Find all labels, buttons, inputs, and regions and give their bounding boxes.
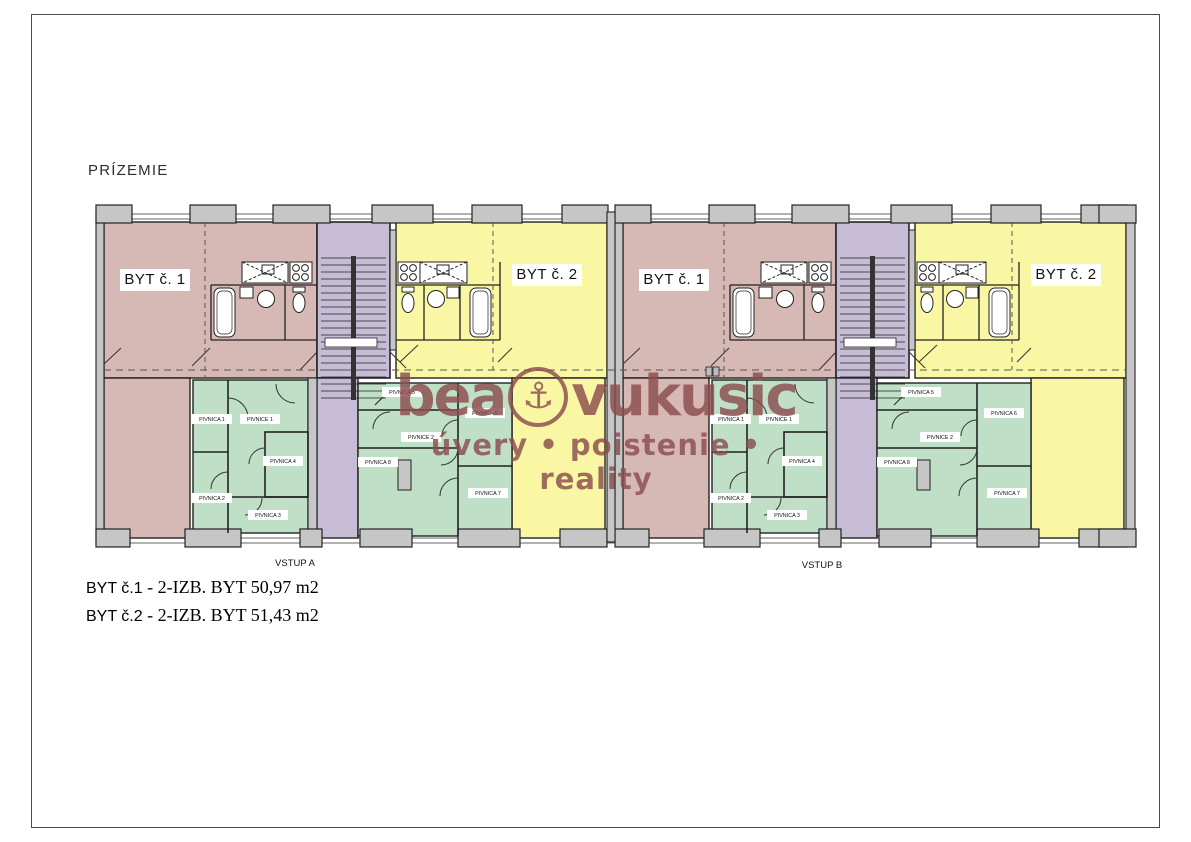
unit-a-entrance-corridor	[317, 378, 358, 538]
unit-b-label-pivnica6: PIVNICA 6	[991, 411, 1017, 417]
unit-a-byt1-label: BYT č. 1	[120, 269, 190, 291]
unit-b-byt2-label: BYT č. 2	[1031, 264, 1101, 286]
legend-byt1-desc: 2-IZB. BYT 50,97 m2	[158, 577, 319, 597]
unit-a-label-pivnica8: PIVNICA 8	[365, 460, 391, 466]
unit-a-shaft	[398, 460, 411, 490]
unit-a-label-pivnica5: PIVNICA 5	[389, 390, 415, 396]
unit-b-label-pivnice2: PIVNICE 2	[927, 435, 953, 441]
unit-b-stair-east-wall	[909, 230, 915, 350]
unit-a-byt1-label-text: BYT č. 1	[124, 271, 185, 288]
bottom-right-corner-pillar	[1099, 529, 1136, 547]
entrance-b-label: VSTUP B	[802, 560, 842, 571]
toilet	[293, 294, 305, 313]
entrance-a-label: VSTUP A	[275, 558, 316, 569]
legend-byt2-label: BYT č.2	[86, 608, 143, 625]
washbasin	[966, 287, 978, 298]
unit-b-label-pivnica8: PIVNICA 8	[884, 460, 910, 466]
right-end-wall	[1126, 212, 1135, 542]
unit-b-label-pivnica5: PIVNICA 5	[908, 390, 934, 396]
legend-byt2-desc: 2-IZB. BYT 51,43 m2	[158, 605, 319, 625]
washer	[947, 291, 964, 308]
unit-a-byt2-kitchen	[398, 262, 467, 283]
unit-a-label-pivnica2: PIVNICA 2	[199, 496, 225, 502]
unit-b-shaft	[917, 460, 930, 490]
top-right-corner-pillar	[1099, 205, 1136, 223]
unit-b-label-pivnice1: PIVNICE 1	[766, 417, 792, 423]
unit-a-byt1-lower-room	[104, 378, 190, 538]
unit-b-byt1-kitchen	[761, 262, 831, 283]
washer	[428, 291, 445, 308]
washer	[777, 291, 794, 308]
unit-a-label-pivnica1: PIVNICA 1	[199, 417, 225, 423]
unit-b-stair-west-wall	[827, 378, 836, 536]
legend-line-byt1: BYT č.1 - 2-IZB. BYT 50,97 m2	[86, 577, 319, 605]
toilet	[402, 294, 414, 313]
unit-a-left-wall	[96, 212, 104, 542]
unit-a-byt1-kitchen	[242, 262, 312, 283]
unit-b-label-pivnica4: PIVNICA 4	[789, 459, 815, 465]
unit-a-label-pivnice2: PIVNICE 2	[408, 435, 434, 441]
washbasin	[447, 287, 459, 298]
unit-b-label-pivnica7: PIVNICA 7	[994, 491, 1020, 497]
stair-rail	[870, 256, 875, 400]
legend-line-byt2: BYT č.2 - 2-IZB. BYT 51,43 m2	[86, 605, 319, 633]
unit-a-byt2-label: BYT č. 2	[512, 264, 582, 286]
unit-a-label-pivnica7: PIVNICA 7	[475, 491, 501, 497]
legend: BYT č.1 - 2-IZB. BYT 50,97 m2 BYT č.2 - …	[86, 577, 319, 633]
legend-byt1-label: BYT č.1	[86, 580, 143, 597]
unit-b-byt1-label: BYT č. 1	[639, 269, 709, 291]
toilet	[921, 294, 933, 313]
unit-a: BYT č. 1 BYT č. 2 PIVNICA 1 PIVNICE 1 PI…	[96, 205, 608, 547]
unit-b-entrance-corridor	[836, 378, 877, 538]
unit-b-label-pivnica2: PIVNICA 2	[718, 496, 744, 502]
unit-b-label-pivnica3: PIVNICA 3	[774, 513, 800, 519]
middle-party-wall	[607, 212, 615, 542]
unit-a-label-pivnica4: PIVNICA 4	[270, 459, 296, 465]
unit-b-byt2-kitchen	[917, 262, 986, 283]
washbasin	[759, 287, 772, 298]
unit-b-left-wall	[615, 212, 623, 542]
unit-a-label-pivnica6: PIVNICA 6	[472, 411, 498, 417]
unit-a-stair-east-wall	[390, 230, 396, 350]
unit-b-byt1-label-text: BYT č. 1	[643, 271, 704, 288]
unit-b-label-pivnica1: PIVNICA 1	[718, 417, 744, 423]
unit-a-stair-west-wall	[308, 378, 317, 536]
unit-a-label-pivnice1: PIVNICE 1	[247, 417, 273, 423]
floor-plan: BYT č. 1 BYT č. 2 PIVNICA 1 PIVNICE 1 PI…	[0, 0, 1191, 842]
stair-rail	[351, 256, 356, 400]
stair-landing	[325, 338, 377, 347]
unit-b-byt2-lower-room	[1031, 378, 1124, 538]
utility-box-2	[713, 367, 719, 376]
unit-b-byt1-lower-room	[623, 378, 709, 538]
stair-landing	[844, 338, 896, 347]
unit-b-byt2-label-text: BYT č. 2	[1035, 266, 1096, 283]
unit-a-byt2-label-text: BYT č. 2	[516, 266, 577, 283]
unit-a-label-pivnica3: PIVNICA 3	[255, 513, 281, 519]
utility-box-1	[706, 367, 712, 376]
unit-b: BYT č. 1 BYT č. 2 PIVNICA 1 PIVNICE 1 PI…	[615, 205, 1127, 547]
toilet	[812, 294, 824, 313]
unit-a-byt2-lower-room	[512, 378, 605, 538]
washer	[258, 291, 275, 308]
washbasin	[240, 287, 253, 298]
